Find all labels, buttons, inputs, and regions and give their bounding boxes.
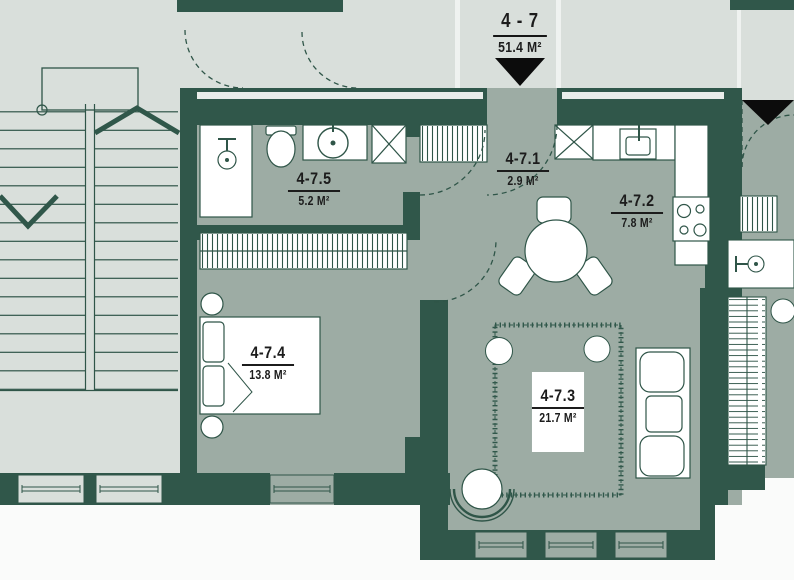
sofa-icon xyxy=(636,348,690,478)
bedroom-window xyxy=(270,475,334,503)
apartment-number: 4 - 7 xyxy=(493,10,547,37)
nightstand-icon xyxy=(201,293,223,315)
lintel-slot xyxy=(197,92,483,99)
room-number: 4-7.1 xyxy=(497,149,549,172)
bottom-wall-mid xyxy=(334,473,450,505)
lintel-slot xyxy=(562,92,724,99)
nightstand-icon xyxy=(201,416,223,438)
room-label-4-7-4: 4-7.4 13.8 M² xyxy=(242,343,294,382)
living-right-wall xyxy=(700,288,728,505)
room-area: 7.8 M² xyxy=(611,214,663,230)
room-area: 13.8 M² xyxy=(242,366,294,382)
room-label-4-7-2: 4-7.2 7.8 M² xyxy=(611,191,663,230)
room-area: 2.9 M² xyxy=(497,172,549,188)
stairwell-window xyxy=(18,475,84,503)
room-area: 5.2 M² xyxy=(288,192,340,208)
stove-icon xyxy=(673,197,710,241)
apartment-area: 51.4 M² xyxy=(493,37,547,56)
room-label-4-7-1: 4-7.1 2.9 M² xyxy=(497,149,549,188)
room-number: 4-7.2 xyxy=(611,191,663,214)
column xyxy=(405,437,448,473)
bedroom-living-wall xyxy=(420,300,448,560)
floor-plan: 4 - 7 51.4 M² 4-7.1 2.9 M² 4-7.2 7.8 M² … xyxy=(0,0,794,580)
room-number: 4-7.3 xyxy=(532,386,584,409)
left-wall xyxy=(180,88,197,505)
room-label-4-7-5: 4-7.5 5.2 M² xyxy=(288,169,340,208)
room-label-4-7-3: 4-7.3 21.7 M² xyxy=(532,372,584,452)
room-number: 4-7.4 xyxy=(242,343,294,366)
corridor-area xyxy=(180,0,742,88)
pillow-icon xyxy=(203,366,224,406)
ventilation-shaft-icon xyxy=(372,125,406,163)
pouf-icon xyxy=(584,336,610,362)
neighbor-landing xyxy=(742,0,794,100)
floor-plan-canvas xyxy=(0,0,794,580)
stair-flight-left xyxy=(0,104,85,390)
stairwell-window xyxy=(96,475,162,503)
room-number: 4-7.5 xyxy=(288,169,340,192)
chair-icon xyxy=(537,197,571,223)
bay-window xyxy=(475,532,527,558)
pillow-icon xyxy=(203,322,224,362)
bay-window xyxy=(545,532,597,558)
apartment-title: 4 - 7 51.4 M² xyxy=(493,10,547,56)
pouf-icon xyxy=(486,338,513,365)
stair-flight-right xyxy=(95,104,178,390)
room-area: 21.7 M² xyxy=(532,409,584,425)
dining-table-icon xyxy=(525,220,587,282)
round-table-icon xyxy=(771,299,794,323)
bay-window xyxy=(615,532,667,558)
kitchen-counter-right xyxy=(675,125,708,265)
ventilation-shaft-icon xyxy=(555,125,593,159)
hallway-closet xyxy=(420,125,487,162)
toilet-icon xyxy=(267,131,295,167)
